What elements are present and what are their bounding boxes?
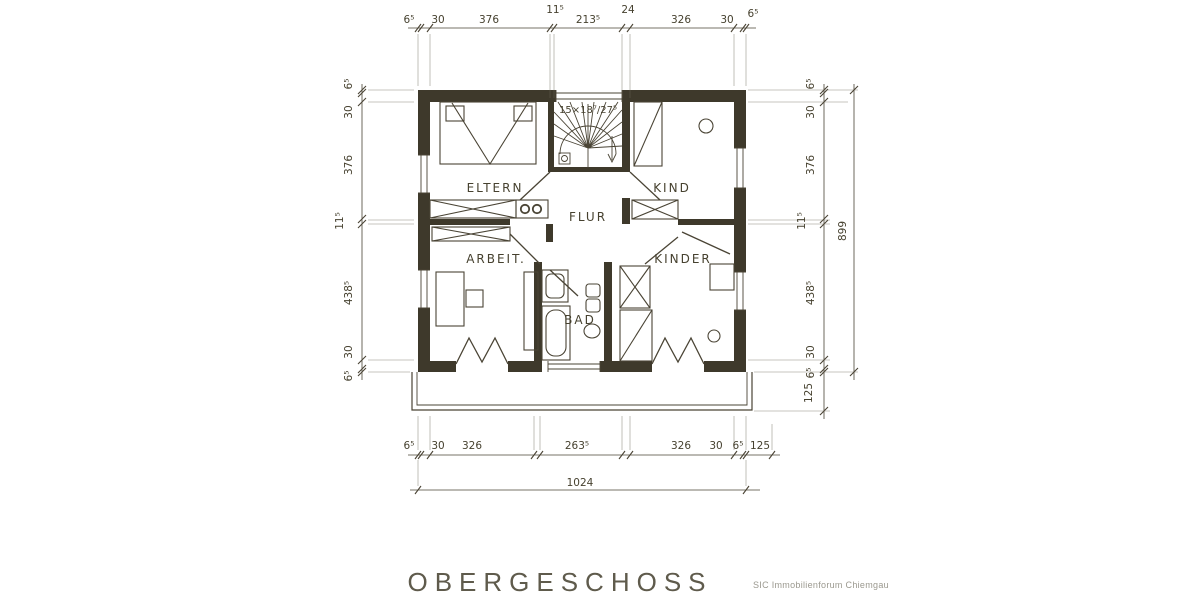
- dimension-chain-top: 6⁵ 30 376 11⁵ 213⁵ 24 326 30 6⁵: [404, 4, 759, 98]
- chair-arbeit: [466, 290, 483, 307]
- balcony-door-arbeit: [456, 338, 508, 364]
- svg-text:30: 30: [720, 14, 733, 26]
- window-eltern: [418, 155, 430, 193]
- svg-text:263⁵: 263⁵: [565, 440, 589, 452]
- dimension-chain-left: 6⁵ 30 376 11⁵ 438⁵ 30 6⁵: [334, 79, 414, 382]
- svg-text:6⁵: 6⁵: [733, 440, 744, 452]
- room-label-kind: KIND: [653, 181, 691, 195]
- watermark-text: SIC Immobilienforum Chiemgau: [753, 580, 889, 590]
- balcony-door-kinder: [652, 338, 704, 364]
- svg-text:30: 30: [805, 345, 817, 358]
- room-label-eltern: ELTERN: [467, 181, 524, 195]
- svg-text:30: 30: [343, 345, 355, 358]
- wc-cistern: [586, 284, 600, 297]
- svg-text:326: 326: [462, 440, 482, 452]
- svg-text:6⁵: 6⁵: [748, 8, 759, 20]
- svg-text:376: 376: [479, 14, 499, 26]
- furniture-eltern: [430, 102, 548, 218]
- svg-text:30: 30: [431, 440, 444, 452]
- floor-plan-drawing: 15×18⁷/27⁵: [0, 0, 1200, 600]
- svg-text:30: 30: [709, 440, 722, 452]
- dimension-total-right: 899: [837, 84, 858, 380]
- svg-text:376: 376: [343, 155, 355, 175]
- svg-text:6⁵: 6⁵: [343, 371, 355, 382]
- room-label-kinder: KINDER: [654, 252, 712, 266]
- svg-text:6⁵: 6⁵: [805, 368, 817, 379]
- door-eltern: [520, 172, 550, 200]
- desk-kinder: [710, 264, 734, 290]
- window-bad: [548, 361, 600, 372]
- dimension-chain-right: 6⁵ 30 376 11⁵ 438⁵ 30 6⁵ 125: [748, 79, 858, 419]
- svg-text:899: 899: [837, 221, 849, 241]
- svg-text:6⁵: 6⁵: [404, 440, 415, 452]
- svg-text:376: 376: [805, 155, 817, 175]
- floor-plan-page: 15×18⁷/27⁵: [0, 0, 1200, 600]
- svg-text:30: 30: [805, 105, 817, 118]
- balcony: [412, 372, 752, 410]
- room-label-arbeit: ARBEIT.: [466, 252, 526, 266]
- svg-text:11⁵: 11⁵: [546, 4, 564, 16]
- door-kinder-swing: [682, 232, 730, 254]
- desk-arbeit: [436, 272, 464, 326]
- window-stair: [556, 90, 622, 102]
- stair-direction-arrow: [608, 136, 616, 162]
- stair-newel-post: [559, 153, 570, 164]
- svg-text:125: 125: [750, 440, 770, 452]
- svg-text:11⁵: 11⁵: [796, 212, 808, 230]
- svg-text:213⁵: 213⁵: [576, 14, 600, 26]
- svg-text:11⁵: 11⁵: [334, 212, 346, 230]
- svg-text:30: 30: [431, 14, 444, 26]
- dimension-chain-bottom: 6⁵ 30 326 263⁵ 326 30 6⁵ 125: [404, 416, 780, 459]
- window-arbeit: [418, 270, 430, 308]
- furniture-kinder: [620, 264, 734, 361]
- svg-text:6⁵: 6⁵: [404, 14, 415, 26]
- svg-text:1024: 1024: [567, 477, 594, 489]
- svg-text:30: 30: [343, 105, 355, 118]
- room-label-flur: FLUR: [569, 210, 607, 224]
- bed-eltern: [440, 102, 536, 164]
- svg-text:24: 24: [621, 4, 635, 16]
- pillow: [514, 106, 532, 121]
- furniture-kind: [632, 102, 713, 219]
- stair-dimension-label: 15×18⁷/27⁵: [559, 105, 617, 116]
- window-kinder: [734, 272, 746, 310]
- stool-kind: [699, 119, 713, 133]
- chair-kinder: [708, 330, 720, 342]
- svg-text:6⁵: 6⁵: [343, 79, 355, 90]
- svg-text:326: 326: [671, 14, 691, 26]
- svg-text:438⁵: 438⁵: [343, 281, 355, 305]
- window-kind: [734, 148, 746, 188]
- svg-text:125: 125: [803, 383, 815, 403]
- room-label-bad: BAD: [564, 313, 596, 327]
- plan-title: OBERGESCHOSS: [0, 567, 1120, 598]
- svg-text:438⁵: 438⁵: [805, 281, 817, 305]
- svg-text:6⁵: 6⁵: [805, 79, 817, 90]
- door-swings: [456, 172, 730, 364]
- dimension-total-bottom: 1024: [410, 460, 760, 494]
- svg-text:326: 326: [671, 440, 691, 452]
